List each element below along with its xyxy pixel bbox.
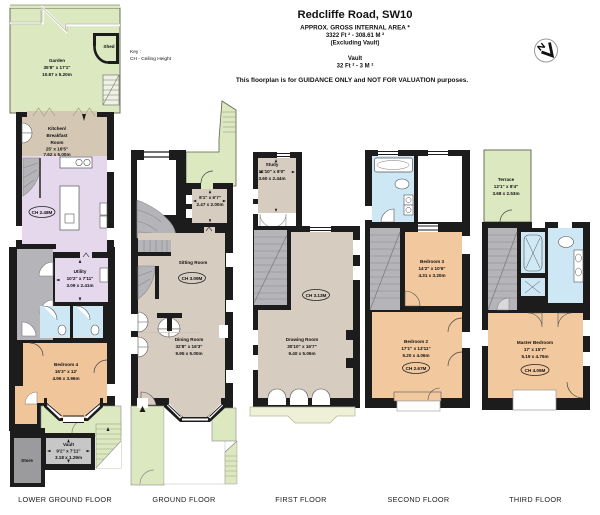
- svg-text:12'1" x 8'4": 12'1" x 8'4": [494, 184, 518, 189]
- svg-text:Vault: Vault: [348, 56, 362, 62]
- svg-text:APPROX. GROSS INTERNAL AREA *: APPROX. GROSS INTERNAL AREA *: [300, 25, 410, 32]
- svg-text:Dining Room: Dining Room: [175, 337, 204, 342]
- svg-text:5.19 x 4.75m: 5.19 x 4.75m: [521, 354, 548, 359]
- svg-text:Vault: Vault: [63, 442, 74, 447]
- svg-text:8'1" x 6'7": 8'1" x 6'7": [199, 195, 221, 200]
- svg-text:FIRST FLOOR: FIRST FLOOR: [275, 495, 326, 504]
- svg-text:CH 4.06M: CH 4.06M: [525, 368, 546, 373]
- svg-text:Key :: Key :: [130, 49, 141, 55]
- svg-text:Drawing Room: Drawing Room: [286, 337, 318, 342]
- svg-text:3.68 x 2.53m: 3.68 x 2.53m: [492, 191, 519, 196]
- svg-text:Store: Store: [21, 458, 33, 463]
- svg-text:CH 2.48M: CH 2.48M: [32, 210, 53, 215]
- svg-text:17'1" x 13'11": 17'1" x 13'11": [401, 346, 430, 351]
- svg-text:2.47 x 2.00m: 2.47 x 2.00m: [196, 202, 223, 207]
- svg-text:CH 2.67M: CH 2.67M: [406, 366, 427, 371]
- svg-text:3.18 x 1.29m: 3.18 x 1.29m: [55, 455, 82, 460]
- svg-text:CH 3.13M: CH 3.13M: [306, 293, 327, 298]
- svg-text:CH 3.09M: CH 3.09M: [182, 276, 203, 281]
- svg-text:Terrace: Terrace: [498, 177, 515, 182]
- svg-text:LOWER GROUND FLOOR: LOWER GROUND FLOOR: [18, 495, 112, 504]
- svg-text:3.60 x 2.44m: 3.60 x 2.44m: [258, 176, 285, 181]
- svg-text:32 Ft ² - 3 M ²: 32 Ft ² - 3 M ²: [337, 63, 374, 70]
- svg-text:Master Bedroom: Master Bedroom: [517, 340, 553, 345]
- svg-text:25' x 16'5": 25' x 16'5": [46, 147, 68, 152]
- svg-text:9.95 x 5.00m: 9.95 x 5.00m: [175, 351, 202, 356]
- svg-text:11'10" x 8'0": 11'10" x 8'0": [259, 169, 286, 174]
- svg-text:Bedroom 4: Bedroom 4: [54, 362, 78, 367]
- svg-text:Kitchen/: Kitchen/: [48, 126, 67, 131]
- svg-text:THIRD FLOOR: THIRD FLOOR: [509, 495, 562, 504]
- svg-text:Bedroom 2: Bedroom 2: [404, 339, 428, 344]
- svg-text:5.20 x 4.06m: 5.20 x 4.06m: [402, 353, 429, 358]
- svg-text:17' x 15'7": 17' x 15'7": [524, 347, 546, 352]
- svg-text:9.40 x 5.06m: 9.40 x 5.06m: [288, 351, 315, 356]
- svg-text:9'2" x 7'11": 9'2" x 7'11": [56, 449, 80, 454]
- svg-text:4.31 x 3.20m: 4.31 x 3.20m: [418, 273, 445, 278]
- svg-text:Room: Room: [50, 140, 63, 145]
- svg-text:14'2" x 10'6": 14'2" x 10'6": [419, 266, 446, 271]
- svg-text:10'2" x 7'11": 10'2" x 7'11": [67, 276, 94, 281]
- svg-text:16'3" x 12': 16'3" x 12': [55, 369, 77, 374]
- svg-text:CH - Ceiling Height: CH - Ceiling Height: [130, 56, 172, 62]
- svg-text:Redcliffe Road, SW10: Redcliffe Road, SW10: [297, 9, 412, 21]
- svg-text:Study: Study: [266, 162, 279, 167]
- svg-text:10.87 x 5.20m: 10.87 x 5.20m: [42, 72, 72, 77]
- svg-text:Utility: Utility: [74, 269, 87, 274]
- svg-text:Shed: Shed: [103, 44, 114, 49]
- svg-text:4.96 x 3.96m: 4.96 x 3.96m: [52, 376, 79, 381]
- svg-text:Breakfast: Breakfast: [47, 133, 68, 138]
- svg-text:3.09 x 2.41m: 3.09 x 2.41m: [66, 283, 93, 288]
- svg-text:SECOND FLOOR: SECOND FLOOR: [388, 495, 450, 504]
- svg-text:Garden: Garden: [49, 58, 65, 63]
- svg-text:3322 Ft ² - 308.61 M ²: 3322 Ft ² - 308.61 M ²: [326, 32, 384, 39]
- svg-text:Bedroom 3: Bedroom 3: [420, 259, 444, 264]
- svg-text:35'8" x 17'1": 35'8" x 17'1": [44, 65, 71, 70]
- svg-text:This floorplan is for GUIDANCE: This floorplan is for GUIDANCE ONLY and …: [236, 77, 469, 84]
- svg-text:(Excluding Vault): (Excluding Vault): [331, 41, 380, 47]
- svg-text:Sitting Room: Sitting Room: [179, 260, 208, 265]
- svg-text:30'10" x 16'7": 30'10" x 16'7": [287, 344, 317, 349]
- svg-text:GROUND FLOOR: GROUND FLOOR: [152, 495, 215, 504]
- svg-text:32'8" x 16'3": 32'8" x 16'3": [176, 344, 203, 349]
